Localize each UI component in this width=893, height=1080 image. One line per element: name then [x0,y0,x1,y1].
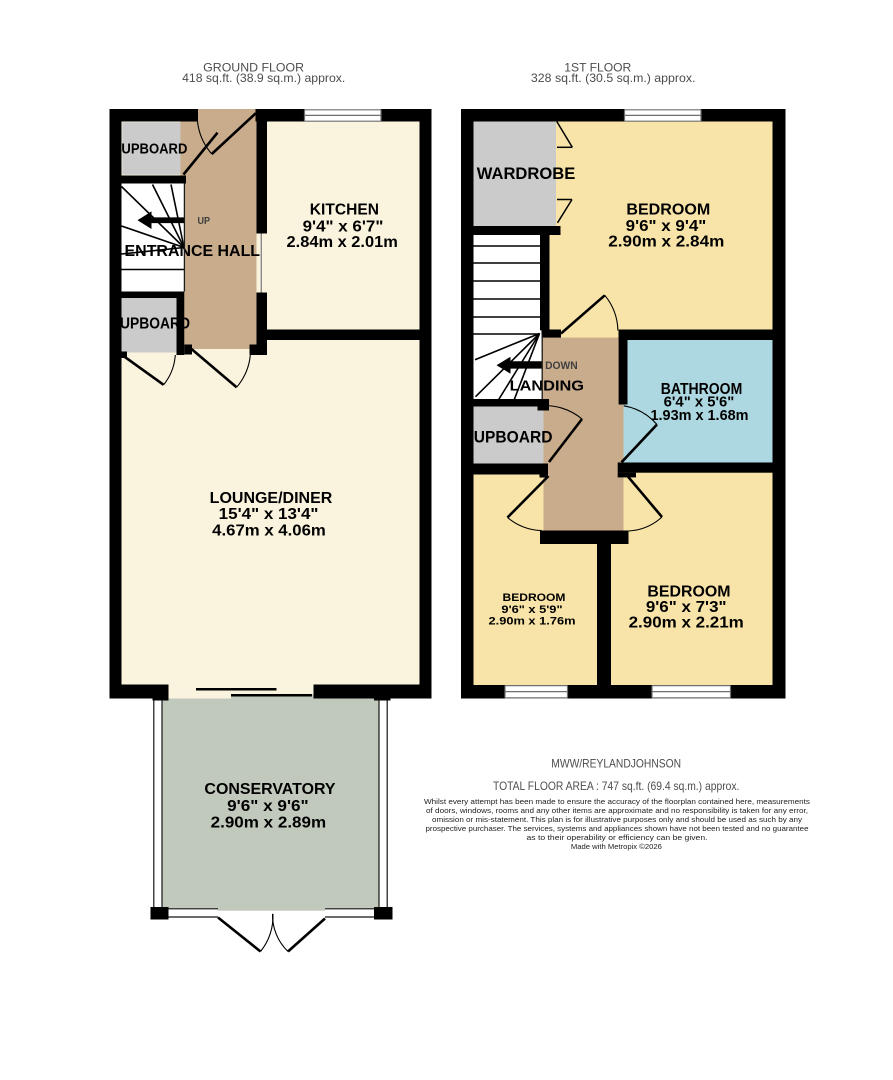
svg-text:BEDROOM: BEDROOM [647,583,730,600]
svg-text:418 sq.ft. (38.9 sq.m.) approx: 418 sq.ft. (38.9 sq.m.) approx. [182,71,345,85]
svg-text:2.90m x 2.89m: 2.90m x 2.89m [211,815,327,832]
svg-text:2.84m x 2.01m: 2.84m x 2.01m [287,234,398,251]
svg-text:Made with Metropix ©2026: Made with Metropix ©2026 [571,842,662,851]
svg-text:UP: UP [198,216,211,227]
svg-text:9'6" x 5'9": 9'6" x 5'9" [501,604,562,616]
svg-text:328 sq.ft. (30.5 sq.m.) approx: 328 sq.ft. (30.5 sq.m.) approx. [531,71,696,85]
svg-text:9'6" x 7'3": 9'6" x 7'3" [646,599,727,616]
svg-text:BEDROOM: BEDROOM [626,202,710,219]
svg-text:CUPBOARD: CUPBOARD [112,142,187,158]
svg-text:of doors, windows, rooms and a: of doors, windows, rooms and any other i… [426,806,808,815]
svg-text:4.67m x 4.06m: 4.67m x 4.06m [212,522,326,539]
svg-text:BEDROOM: BEDROOM [503,592,566,604]
svg-text:CUPBOARD: CUPBOARD [463,429,553,447]
svg-text:2.90m x 2.84m: 2.90m x 2.84m [608,234,724,251]
svg-text:15'4" x 13'4": 15'4" x 13'4" [219,506,319,523]
svg-text:2.90m x 2.21m: 2.90m x 2.21m [629,615,744,632]
svg-text:DOWN: DOWN [545,360,578,372]
svg-text:MWW/REYLANDJOHNSON: MWW/REYLANDJOHNSON [551,757,681,771]
svg-text:TOTAL FLOOR AREA : 747 sq.ft.: TOTAL FLOOR AREA : 747 sq.ft. (69.4 sq.m… [493,779,739,793]
svg-text:prospective purchaser. The ser: prospective purchaser. The services, sys… [426,824,809,833]
svg-text:LANDING: LANDING [510,379,584,395]
svg-text:9'6" x 9'4": 9'6" x 9'4" [626,218,707,235]
svg-text:omission or mis-statement. Thi: omission or mis-statement. This plan is … [432,815,802,824]
svg-text:Whilst every attempt has been: Whilst every attempt has been made to en… [424,797,810,806]
svg-text:WARDROBE: WARDROBE [477,164,576,183]
svg-text:CONSERVATORY: CONSERVATORY [204,781,336,798]
svg-text:as to their operability or eff: as to their operability or efficiency ca… [527,833,708,842]
svg-text:KITCHEN: KITCHEN [310,202,379,219]
svg-text:ENTRANCE HALL: ENTRANCE HALL [125,243,261,260]
svg-text:LOUNGE/DINER: LOUNGE/DINER [210,490,333,507]
svg-text:9'6" x 9'6": 9'6" x 9'6" [227,798,309,815]
svg-text:1.93m x 1.68m: 1.93m x 1.68m [651,408,749,424]
svg-text:2.90m x 1.76m: 2.90m x 1.76m [489,616,576,628]
